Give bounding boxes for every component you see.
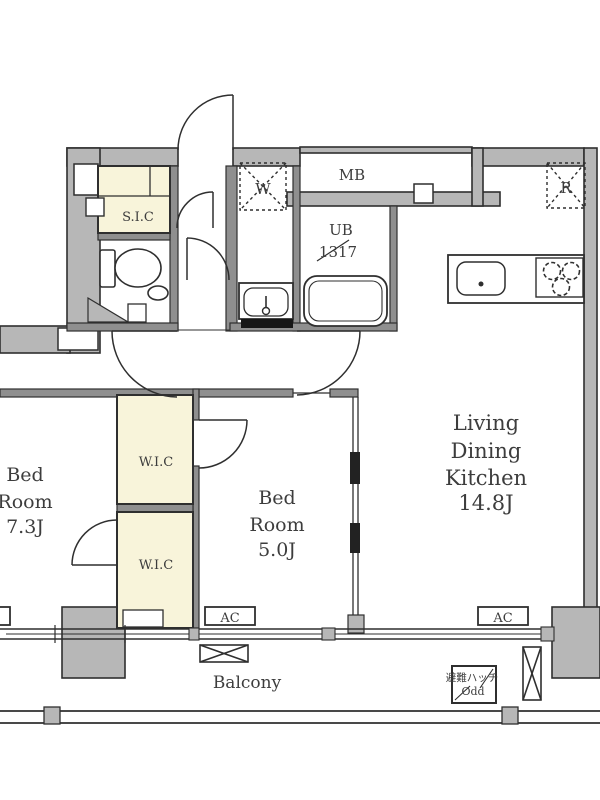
bed5-ldk-sliding-wall bbox=[348, 397, 364, 633]
wall-above-mb bbox=[300, 147, 472, 153]
label-fridge: R bbox=[560, 179, 572, 197]
bathtub-fixture bbox=[304, 276, 387, 326]
label-wic-lower: W.I.C bbox=[139, 558, 173, 573]
kitchen-counter bbox=[448, 255, 584, 303]
sliding-door-panel-2 bbox=[350, 523, 360, 553]
label-mb: MB bbox=[339, 166, 365, 184]
label-wic-upper: W.I.C bbox=[139, 455, 173, 470]
label-ac-ldk: AC bbox=[492, 611, 512, 626]
ldk-door bbox=[297, 331, 360, 395]
railing-post-left bbox=[44, 707, 60, 724]
block-bottom-right bbox=[552, 607, 600, 678]
label-bed7-1: Bed bbox=[6, 464, 43, 486]
corridor-door bbox=[177, 192, 213, 228]
label-hatch-en: Odd bbox=[461, 685, 484, 698]
sliding-door-panel-1 bbox=[350, 452, 360, 484]
pillar-bottom-left bbox=[62, 607, 125, 678]
wall-ub-right bbox=[390, 206, 397, 331]
wic-lower-door bbox=[72, 520, 117, 565]
label-ldk-4: 14.8J bbox=[458, 491, 513, 515]
entrance-door bbox=[178, 95, 233, 150]
niche-left-top bbox=[74, 164, 98, 195]
toilet-corner-shelf bbox=[88, 298, 128, 322]
label-bed5-1: Bed bbox=[258, 487, 295, 509]
wall-genkan-left bbox=[170, 166, 178, 331]
walk-in-closet-upper bbox=[117, 395, 193, 504]
wall-wic-divider bbox=[117, 504, 193, 512]
toilet-fixture bbox=[100, 249, 168, 300]
balcony-railing bbox=[0, 707, 600, 724]
window-post-3 bbox=[541, 627, 554, 641]
label-bed5-3: 5.0J bbox=[258, 539, 296, 561]
label-sic: S.I.C bbox=[122, 210, 154, 225]
toilet-door bbox=[187, 238, 229, 280]
wall-bed5-top-right bbox=[330, 389, 358, 397]
floor-plan-drawing: S.I.C MB W R UB 1317 Living Dining Kitch… bbox=[0, 0, 600, 800]
label-hatch-jp: 避難ハッチ bbox=[446, 671, 499, 684]
wall-sic-toilet bbox=[98, 233, 170, 240]
toilet-tank bbox=[100, 250, 115, 287]
window-post-1 bbox=[189, 628, 199, 640]
sic-niche bbox=[86, 198, 104, 216]
label-ac-bed5: AC bbox=[219, 611, 239, 626]
wic-lower-niche bbox=[123, 610, 163, 627]
label-ldk-1: Living bbox=[453, 411, 519, 435]
vanity-fixture bbox=[239, 283, 293, 328]
label-bed5-2: Room bbox=[249, 514, 304, 536]
floor-plan-page: S.I.C MB W R UB 1317 Living Dining Kitch… bbox=[0, 0, 600, 800]
bedroom7-door bbox=[112, 331, 177, 397]
kitchen-drain bbox=[479, 282, 484, 287]
wall-toilet-bottom bbox=[67, 323, 178, 331]
wall-under-mb bbox=[287, 192, 500, 206]
balcony-partition bbox=[523, 647, 541, 700]
label-ub-size: 1317 bbox=[319, 243, 357, 261]
ac-box-bed7 bbox=[0, 607, 10, 625]
label-bed7-2: Room bbox=[0, 491, 53, 513]
bathtub-inner bbox=[309, 281, 382, 321]
label-ldk-2: Dining bbox=[451, 439, 522, 463]
wall-junction-bed5-bottom bbox=[348, 615, 364, 633]
kitchen-sink bbox=[457, 262, 505, 295]
wall-genkan-right bbox=[226, 166, 237, 331]
pipe-space bbox=[414, 184, 433, 203]
railing-post-right bbox=[502, 707, 518, 724]
vanity-base bbox=[241, 319, 293, 328]
label-balcony: Balcony bbox=[213, 673, 282, 693]
toilet-counter-box bbox=[128, 304, 146, 322]
balcony-drain-box bbox=[200, 645, 248, 662]
wall-right bbox=[584, 148, 597, 608]
window-post-2 bbox=[322, 628, 335, 640]
label-ub: UB bbox=[329, 221, 353, 239]
label-bed7-3: 7.3J bbox=[6, 516, 44, 538]
label-ldk-3: Kitchen bbox=[445, 466, 527, 490]
wall-sanitary-ub bbox=[293, 166, 300, 331]
label-washer: W bbox=[255, 180, 271, 198]
toilet-handwash bbox=[148, 286, 168, 300]
bedroom5-closet-door bbox=[199, 420, 247, 468]
wall-mb-right bbox=[472, 148, 483, 206]
toilet-bowl bbox=[115, 249, 161, 287]
